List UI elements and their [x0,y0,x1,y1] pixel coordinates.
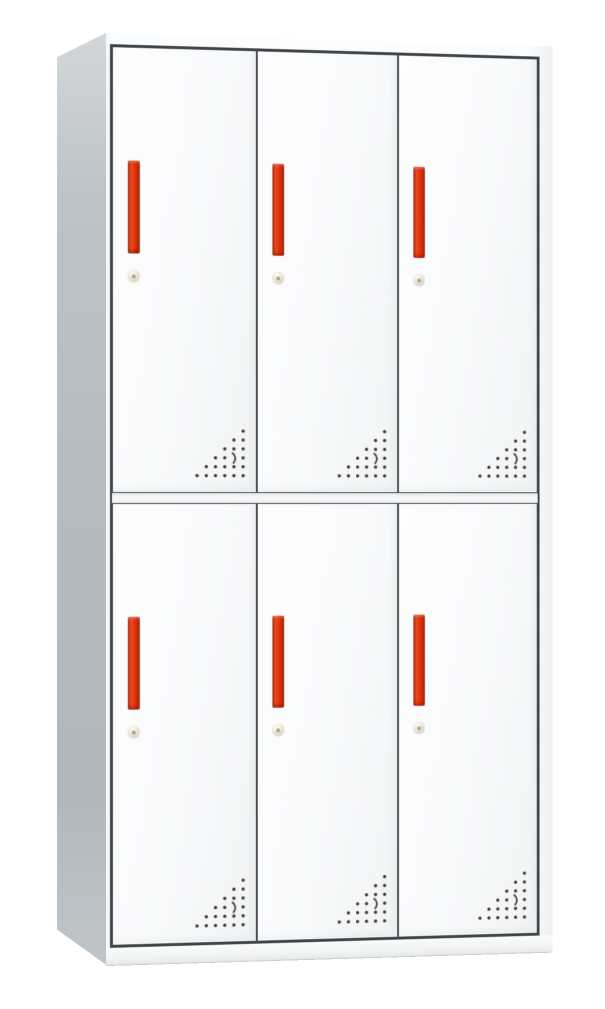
door-handle [272,164,284,256]
keyhole-icon [132,274,136,278]
door-handle [414,615,425,706]
vent-holes-icon [478,871,527,921]
locker-door-top-right [398,55,537,494]
door-lock [414,274,425,286]
locker-product-photo: White steel locker cabinet with six door… [0,0,605,1009]
cabinet-side-panel [56,32,108,968]
doors-grid [110,44,540,948]
locker-door-bottom-left [112,503,257,946]
door-lock [414,721,425,733]
door-lock [272,723,284,735]
locker-door-bottom-right [398,503,537,938]
door-lock [272,271,284,283]
keyhole-icon [418,279,422,283]
door-lock [128,726,140,738]
locker-door-top-center [256,50,398,493]
cabinet-front-face [106,33,553,966]
keyhole-icon [418,726,422,730]
locker-door-top-left [112,46,257,493]
door-handle [128,160,140,253]
keyhole-icon [276,728,280,732]
vent-holes-icon [338,874,388,924]
keyhole-icon [276,276,280,280]
door-handle [414,167,425,258]
vent-holes-icon [195,428,246,478]
door-lock [128,269,140,281]
locker-door-bottom-center [256,503,398,942]
door-handle [128,617,140,710]
vent-holes-icon [338,429,388,478]
keyhole-icon [132,731,136,735]
shelf-divider [112,493,538,503]
door-handle [272,616,284,708]
vent-holes-icon [195,878,246,929]
vent-holes-icon [478,430,527,479]
